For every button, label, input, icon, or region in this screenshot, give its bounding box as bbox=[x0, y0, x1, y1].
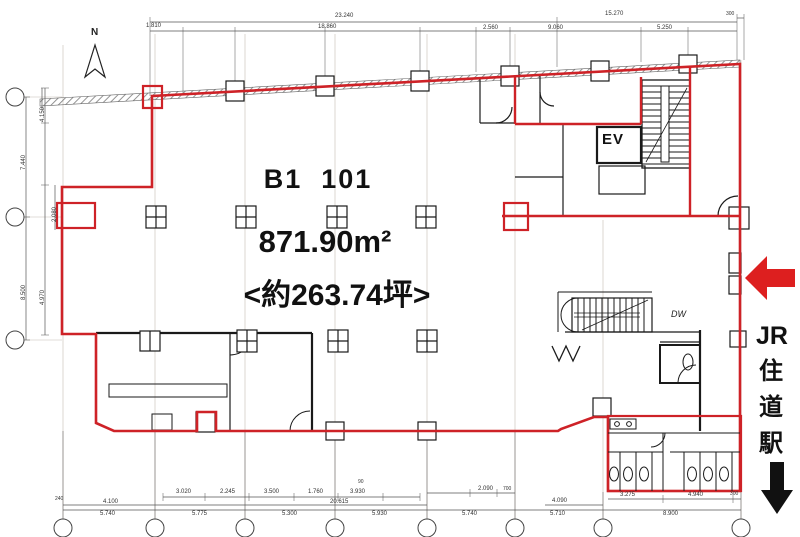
dim-label: 3.275 bbox=[620, 492, 635, 498]
dim-label: 3.020 bbox=[176, 489, 191, 495]
dim-label: 4.090 bbox=[552, 498, 567, 504]
dim-label: 5.740 bbox=[100, 511, 115, 517]
dim-label: 2.560 bbox=[483, 25, 498, 31]
dim-label: 300 bbox=[726, 12, 734, 17]
dim-label: 4.970 bbox=[40, 290, 46, 305]
unit-label: B1 101 bbox=[228, 166, 408, 193]
dim-label: 18.860 bbox=[318, 24, 336, 30]
dim-label: 8.500 bbox=[21, 285, 27, 300]
station-char: 駅 bbox=[759, 432, 783, 456]
dim-label: 5.710 bbox=[550, 511, 565, 517]
dim-label: 5.740 bbox=[462, 511, 477, 517]
dim-label: 4.150 bbox=[40, 107, 46, 122]
dim-label: 4.940 bbox=[688, 492, 703, 498]
dim-label: 2.090 bbox=[478, 486, 493, 492]
dim-label: 300 bbox=[730, 492, 738, 497]
station-direction-arrow-icon bbox=[745, 256, 795, 300]
area-m2-label: 871.90m² bbox=[215, 226, 435, 257]
dim-label: 5.930 bbox=[372, 511, 387, 517]
down-arrow-icon bbox=[761, 462, 793, 514]
dim-label: 2.080 bbox=[52, 207, 58, 222]
dim-label: 240 bbox=[55, 497, 63, 502]
dim-label: 5.300 bbox=[282, 511, 297, 517]
restroom-block bbox=[608, 419, 740, 491]
floorplan-linework bbox=[0, 0, 800, 537]
dim-label: 7.440 bbox=[21, 155, 27, 170]
station-char: 道 bbox=[759, 396, 783, 420]
dimension-lines bbox=[22, 14, 744, 519]
dim-label: 3.930 bbox=[350, 489, 365, 495]
area-tsubo-label: <約263.74坪> bbox=[172, 281, 502, 311]
dim-label: 3.500 bbox=[264, 489, 279, 495]
dim-label: 15.270 bbox=[605, 11, 623, 17]
construction-grid-lines bbox=[24, 34, 741, 520]
dim-label: 20.615 bbox=[330, 499, 348, 505]
floorplan-canvas: B1 101 871.90m² <約263.74坪> EV DW N JR 住 … bbox=[0, 0, 800, 537]
dim-label: 4.100 bbox=[103, 499, 118, 505]
station-char: 住 bbox=[759, 360, 783, 384]
dim-label: 5.775 bbox=[192, 511, 207, 517]
elevator-label: EV bbox=[602, 132, 624, 147]
north-arrow-icon bbox=[85, 45, 105, 77]
dim-label: 9.060 bbox=[548, 25, 563, 31]
w-symbol bbox=[552, 346, 580, 361]
north-label: N bbox=[91, 28, 98, 38]
dim-label: 2.245 bbox=[220, 489, 235, 495]
stairs-northeast bbox=[642, 80, 690, 168]
dim-label: 90 bbox=[358, 480, 364, 485]
station-prefix-label: JR bbox=[756, 324, 788, 349]
dim-label: 700 bbox=[503, 487, 511, 492]
dim-label: 1.760 bbox=[308, 489, 323, 495]
dim-label: 8.900 bbox=[663, 511, 678, 517]
dim-label: 23.240 bbox=[335, 13, 353, 19]
dim-label: 5.250 bbox=[657, 25, 672, 31]
dim-label: 1.810 bbox=[146, 23, 161, 29]
dumbwaiter-label: DW bbox=[671, 310, 686, 319]
